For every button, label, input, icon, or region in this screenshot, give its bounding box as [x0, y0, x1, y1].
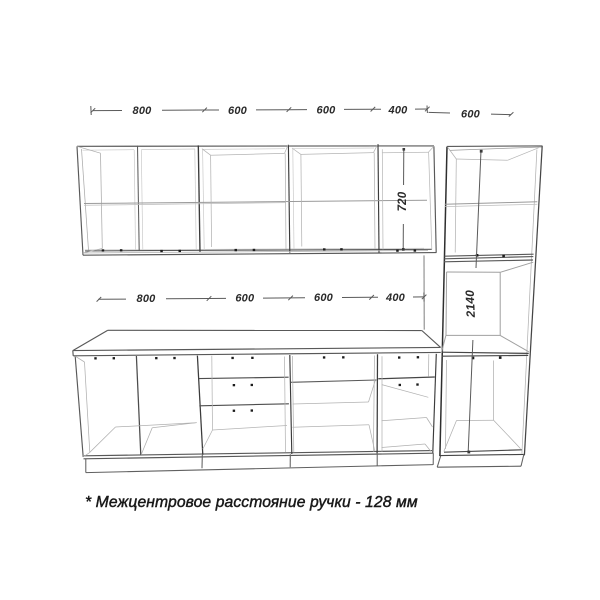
svg-text:800: 800: [133, 105, 153, 117]
svg-text:800: 800: [137, 293, 157, 305]
svg-text:400: 400: [385, 292, 406, 304]
svg-text:720: 720: [397, 191, 409, 211]
svg-text:400: 400: [388, 104, 409, 116]
svg-text:600: 600: [314, 292, 334, 304]
svg-text:600: 600: [235, 293, 255, 305]
svg-text:2140: 2140: [463, 290, 478, 319]
svg-text:600: 600: [461, 109, 481, 121]
svg-text:600: 600: [317, 105, 337, 117]
svg-text:600: 600: [228, 105, 248, 117]
svg-text:* Межцентровое расстояние ручк: * Межцентровое расстояние ручки - 128 мм: [85, 494, 418, 511]
